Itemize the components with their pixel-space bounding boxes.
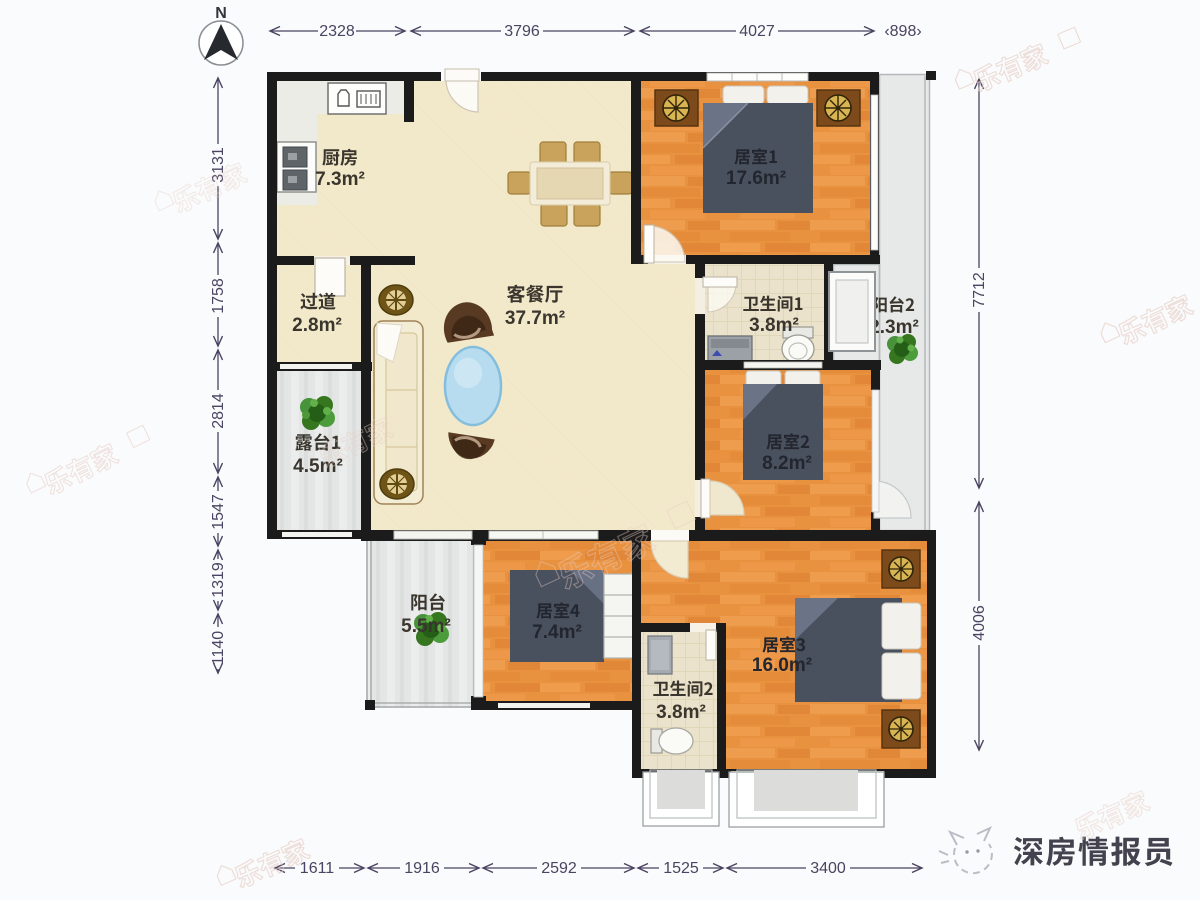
svg-text:1916: 1916: [404, 860, 440, 877]
svg-text:17.6m²: 17.6m²: [726, 168, 786, 189]
svg-text:2.8m²: 2.8m²: [292, 315, 342, 336]
svg-text:4.5m²: 4.5m²: [293, 456, 343, 477]
svg-text:7712: 7712: [971, 272, 988, 308]
svg-text:2328: 2328: [319, 23, 355, 40]
svg-text:2814: 2814: [210, 393, 227, 429]
svg-text:‹898›: ‹898›: [884, 23, 921, 40]
svg-text:1525: 1525: [663, 860, 699, 877]
svg-text:1319: 1319: [210, 562, 227, 598]
svg-text:3796: 3796: [504, 23, 540, 40]
svg-text:16.0m²: 16.0m²: [752, 655, 812, 676]
svg-text:N: N: [215, 5, 227, 22]
svg-text:3.8m²: 3.8m²: [749, 315, 799, 336]
svg-text:2592: 2592: [541, 860, 577, 877]
svg-text:1547: 1547: [210, 494, 227, 530]
svg-text:2.3m²: 2.3m²: [869, 317, 919, 338]
svg-text:37.7m²: 37.7m²: [505, 308, 565, 329]
svg-text:5.5m²: 5.5m²: [401, 616, 451, 637]
svg-text:7.4m²: 7.4m²: [532, 622, 582, 643]
svg-text:8.2m²: 8.2m²: [762, 453, 812, 474]
svg-text:3400: 3400: [810, 860, 846, 877]
svg-text:4006: 4006: [971, 605, 988, 641]
svg-text:1611: 1611: [300, 860, 335, 877]
svg-text:7.3m²: 7.3m²: [315, 169, 365, 190]
svg-text:1140: 1140: [210, 631, 227, 666]
svg-text:4027: 4027: [739, 23, 775, 40]
svg-text:3.8m²: 3.8m²: [656, 702, 706, 723]
svg-text:1758: 1758: [210, 278, 227, 314]
